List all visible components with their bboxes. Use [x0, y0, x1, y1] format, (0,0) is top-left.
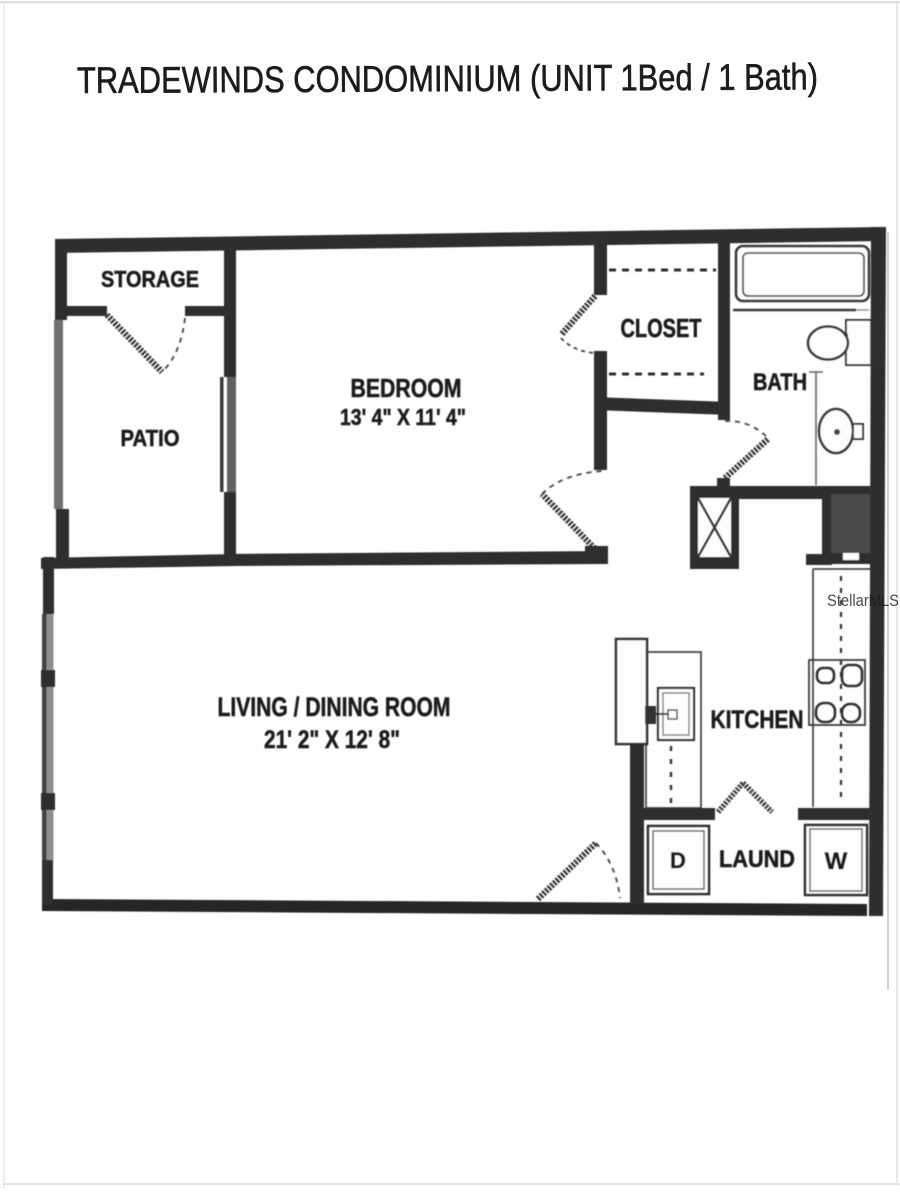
svg-text:BEDROOM: BEDROOM — [351, 373, 462, 403]
svg-text:13' 4" X 11' 4": 13' 4" X 11' 4" — [340, 404, 466, 430]
svg-text:BATH: BATH — [753, 369, 807, 396]
svg-text:W: W — [825, 848, 848, 875]
svg-text:STORAGE: STORAGE — [101, 266, 199, 292]
svg-text:CLOSET: CLOSET — [621, 313, 702, 343]
svg-text:21' 2" X 12' 8": 21' 2" X 12' 8" — [264, 726, 400, 754]
svg-text:PATIO: PATIO — [121, 425, 180, 451]
svg-text:D: D — [670, 848, 686, 873]
svg-text:TRADEWINDS CONDOMINIUM (UNIT: TRADEWINDS CONDOMINIUM (UNIT 1Bed / 1 Ba… — [77, 56, 818, 101]
svg-text:LAUND: LAUND — [719, 846, 795, 873]
svg-text:LIVING / DINING ROOM: LIVING / DINING ROOM — [218, 692, 451, 722]
svg-text:KITCHEN: KITCHEN — [711, 706, 804, 734]
svg-text:StellarMLS: StellarMLS — [827, 592, 899, 610]
